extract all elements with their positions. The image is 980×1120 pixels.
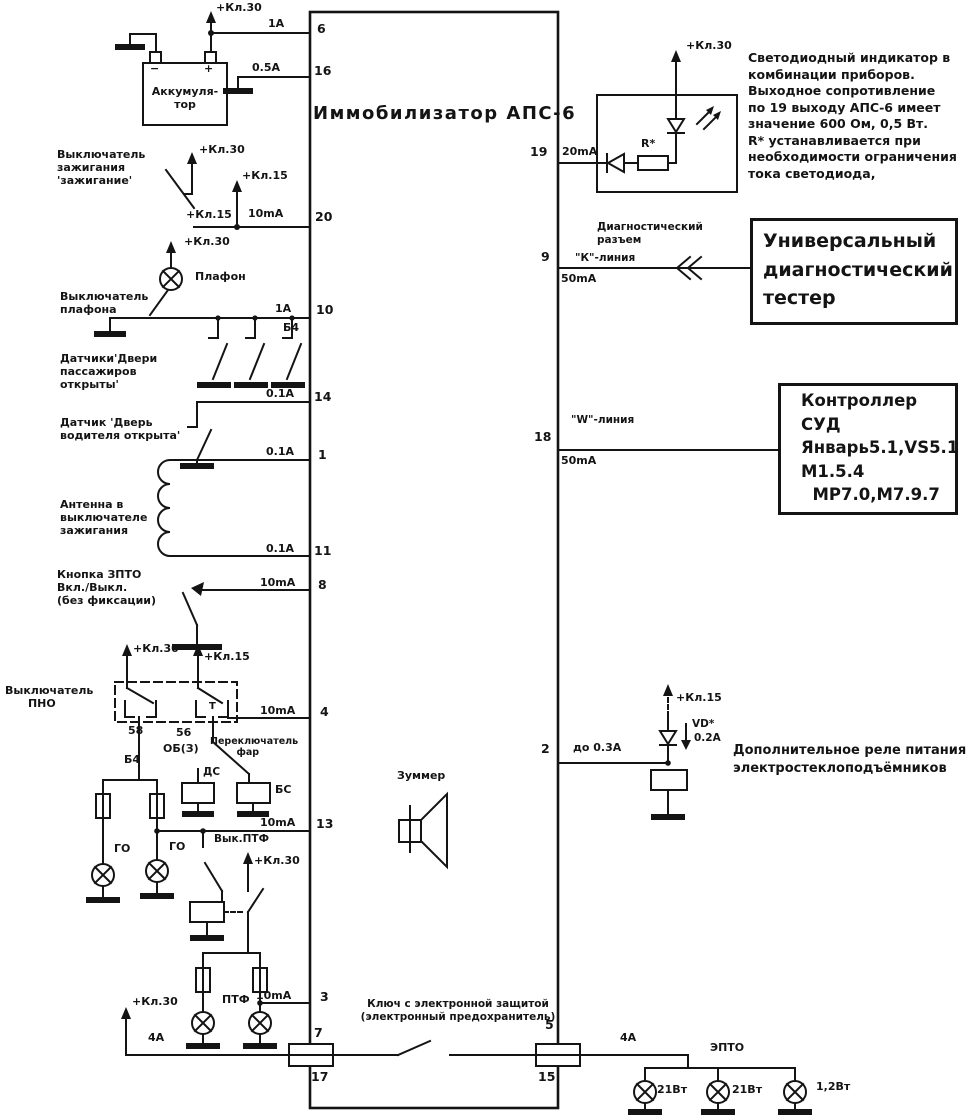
fuse-4a-right-label: 4А: [620, 1031, 636, 1044]
ignition-switch-label: Выключатель зажигания 'зажигание': [57, 148, 145, 188]
pin13-number: 13: [316, 816, 333, 831]
pin2-number: 2: [541, 741, 550, 756]
terminal-58-label: 58: [128, 724, 143, 737]
lamp12-label: 1,2Вт: [816, 1080, 850, 1093]
pin16-number: 16: [314, 63, 331, 78]
pin20-current: 10mA: [248, 207, 283, 220]
pin9-number: 9: [541, 249, 550, 264]
go-label-2: ГО: [169, 840, 185, 853]
immobilizer-block-outline: [310, 12, 558, 1108]
immobilizer-title: Иммобилизатор АПС-6: [313, 103, 576, 125]
pin18-current: 50mA: [561, 454, 596, 467]
battery-label: Аккумуля- тор: [143, 85, 227, 111]
plafond-circuit: [97, 241, 310, 334]
ptf-switch-label: Вык.ПТФ: [214, 833, 269, 846]
kl15-wire-label: +Кл.15: [186, 208, 232, 221]
plafond-label: Плафон: [195, 270, 246, 283]
w-line-label: "W"-линия: [571, 414, 634, 427]
kl30-led-label: +Кл.30: [686, 39, 732, 52]
led-note-text: Светодиодный индикатор в комбинации приб…: [748, 50, 957, 182]
kl15-arrow-label: +Кл.15: [242, 169, 288, 182]
key-note-label: Ключ с электронной защитой (электронный …: [338, 998, 578, 1023]
pin17-number: 17: [311, 1069, 328, 1084]
battery-minus: −: [150, 62, 159, 75]
pin9-current: 50mA: [561, 272, 596, 285]
zpto-button: [175, 582, 310, 647]
kl30-pno-label: +Кл.30: [133, 642, 179, 655]
lamp21-label-2: 21Вт: [732, 1083, 762, 1096]
t-contact-label: Т: [209, 701, 216, 713]
diag-connector-label: Диагностический разъем: [597, 221, 703, 246]
zpto-button-label: Кнопка ЗПТО Вкл./Выкл. (без фиксации): [57, 568, 156, 608]
driver-door-label: Датчик 'Дверь водителя открыта': [60, 416, 180, 442]
epto-label: ЭПТО: [710, 1041, 744, 1054]
pin19-current: 20mA: [562, 145, 597, 158]
kl30-plafond-label: +Кл.30: [184, 235, 230, 248]
pin1-current: 0.1А: [266, 445, 294, 458]
go-label-1: ГО: [114, 842, 130, 855]
pin7-number: 7: [314, 1025, 323, 1040]
pin19-number: 19: [530, 144, 547, 159]
pin18-number: 18: [534, 429, 551, 444]
relay-note-text: Дополнительное реле питания электростекл…: [733, 742, 966, 777]
pin15-number: 15: [538, 1069, 555, 1084]
pin1-number: 1: [318, 447, 327, 462]
r-star-label: R*: [641, 137, 655, 150]
pin10-wire-label: Б4: [283, 321, 299, 334]
battery-plus: +: [204, 62, 213, 75]
pin8-number: 8: [318, 577, 327, 592]
fuse-4a-left-label: 4А: [148, 1031, 164, 1044]
kl30-ptf-label: +Кл.30: [254, 854, 300, 867]
kl30-battery-label: +Кл.30: [216, 1, 262, 14]
ds-label: ДС: [203, 766, 220, 779]
pin10-current: 1А: [275, 302, 291, 315]
tester-box-text: Универсальный диагностический тестер: [753, 221, 955, 313]
terminal-56-label: 56: [176, 726, 191, 739]
vd-label: VD*: [692, 718, 714, 731]
controller-box: Контроллер СУД Январь5.1,VS5.1 М1.5.4 МР…: [778, 383, 958, 515]
kl30-ignition-label: +Кл.30: [199, 143, 245, 156]
pin6-current: 1А: [268, 17, 284, 30]
pin11-number: 11: [314, 543, 331, 558]
pin6-number: 6: [317, 21, 326, 36]
tester-box: Универсальный диагностический тестер: [750, 218, 958, 325]
pin16-current: 0.5А: [252, 61, 280, 74]
wire-b4-label: Б4: [124, 753, 140, 766]
pin14-number: 14: [314, 389, 331, 404]
pin11-current: 0.1А: [266, 542, 294, 555]
ptf-label: ПТФ: [222, 993, 250, 1006]
pin3-number: 3: [320, 989, 329, 1004]
buzzer-symbol: [399, 794, 447, 867]
pin2-current: до 0.3А: [573, 741, 621, 754]
kl15-relay-label: +Кл.15: [676, 691, 722, 704]
k-line-label: "К"-линия: [575, 252, 635, 265]
antenna-label: Антенна в выключателе зажигания: [60, 498, 147, 538]
wiring-diagram: Иммобилизатор АПС-6 +Кл.30 − + Аккумуля-…: [0, 0, 980, 1120]
headlight-switch-label: Переключатель фар: [210, 736, 298, 759]
terminal-ob3-label: ОБ(З): [163, 742, 199, 755]
kl15-pno-label: +Кл.15: [204, 650, 250, 663]
pin10-number: 10: [316, 302, 333, 317]
passenger-doors-label: Датчики'Двери пассажиров открыты': [60, 352, 157, 392]
buzzer-label: Зуммер: [397, 769, 445, 782]
kl30-bottom-label: +Кл.30: [132, 995, 178, 1008]
pno-switch-label: Выключатель ПНО: [5, 684, 93, 710]
controller-box-text: Контроллер СУД Январь5.1,VS5.1 М1.5.4 МР…: [781, 386, 955, 507]
pin14-current: 0.1А: [266, 387, 294, 400]
pin4-current: 10mA: [260, 704, 295, 717]
pin20-number: 20: [315, 209, 332, 224]
side-lights-branch: [89, 780, 310, 900]
lamp21-label-1: 21Вт: [657, 1083, 687, 1096]
led-indicator-circuit: [558, 50, 737, 192]
plafond-switch-label: Выключатель плафона: [60, 290, 148, 316]
pin8-current: 10mA: [260, 576, 295, 589]
bs-label: БС: [275, 783, 291, 796]
pin3-current: 10mA: [256, 989, 291, 1002]
vd-current-label: 0.2А: [694, 732, 721, 745]
pin4-number: 4: [320, 704, 329, 719]
pin13-current: 10mA: [260, 816, 295, 829]
